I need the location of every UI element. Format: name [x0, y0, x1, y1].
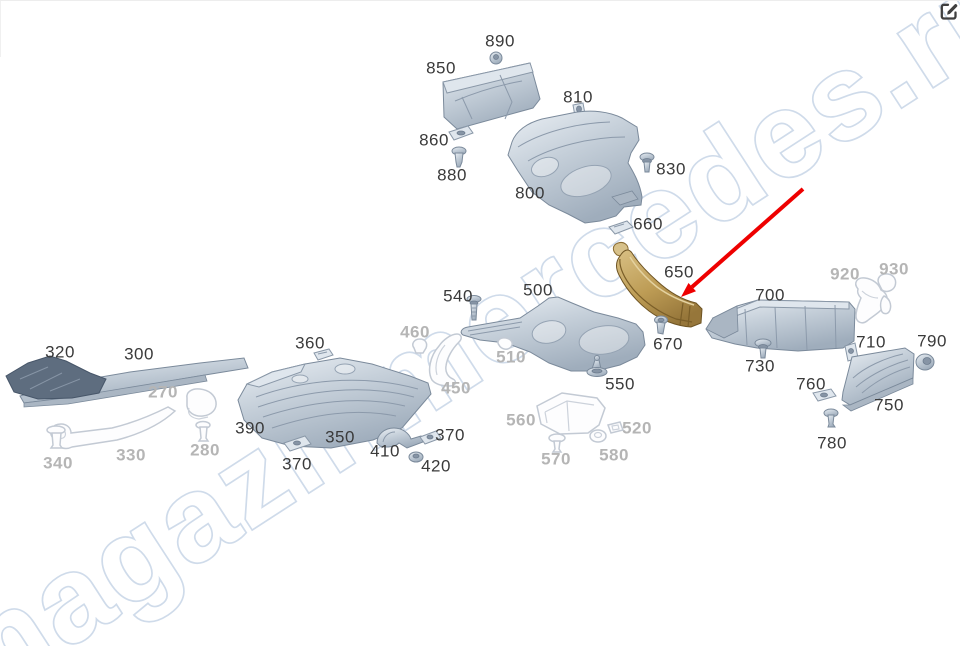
parts-diagram-image[interactable]: magazinmercedes.ru: [0, 0, 960, 646]
part-560-tray: [537, 393, 605, 434]
part-580-grommet: [590, 430, 606, 442]
part-760-bracket: [813, 389, 836, 401]
part-880-plug: [452, 147, 466, 167]
part-850-heat-shield: [443, 63, 540, 129]
part-420-grommet: [409, 452, 423, 462]
part-700-sill-panel: [706, 300, 855, 351]
part-270-cover: [187, 389, 216, 419]
part-460-bracket: [413, 339, 427, 353]
part-520-clip: [608, 422, 623, 433]
part-790-grommet: [916, 354, 934, 370]
part-510-clip: [498, 338, 512, 349]
part-780-plug: [824, 409, 838, 427]
diagram-canvas: magazinmercedes.ru: [0, 1, 960, 646]
part-670-screw: [655, 316, 668, 334]
part-750-panel: [842, 348, 914, 411]
edit-open-icon-button[interactable]: [938, 1, 960, 23]
edit-open-icon: [939, 1, 959, 21]
part-860-bracket: [449, 126, 473, 140]
part-570-plug: [549, 434, 565, 452]
part-330-bracket-arm: [51, 407, 175, 448]
part-890-fastener: [490, 52, 502, 64]
part-800-heat-shield: [508, 111, 642, 223]
